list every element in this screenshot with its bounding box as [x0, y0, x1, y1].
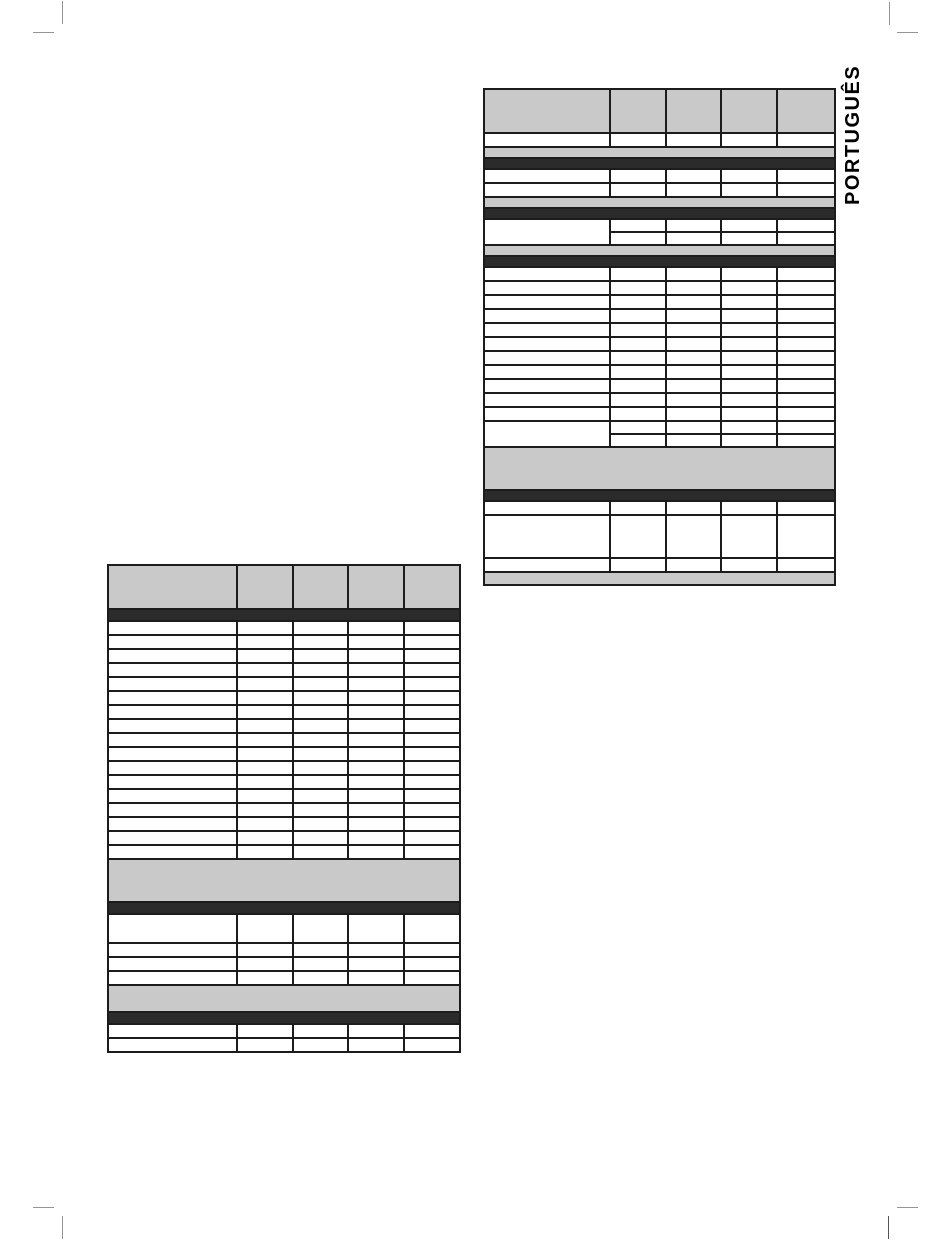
spec-value-cell	[237, 761, 293, 775]
header-cell	[721, 89, 777, 133]
spec-name-cell	[108, 803, 237, 817]
crop-mark-bottom-left-vertical	[62, 1216, 63, 1239]
spec-value-cell	[237, 1038, 293, 1052]
spec-value-cell	[721, 169, 777, 183]
spec-value-cell	[721, 558, 777, 572]
spec-value-cell	[293, 845, 348, 859]
spec-value-cell	[348, 971, 404, 985]
spec-name-cell	[108, 789, 237, 803]
spec-value-cell	[666, 365, 721, 379]
spec-name-cell	[108, 747, 237, 761]
spec-value-cell	[777, 295, 835, 309]
spec-value-cell	[348, 831, 404, 845]
spec-value-cell	[610, 219, 666, 232]
spec-value-cell	[237, 663, 293, 677]
section-band-gray	[484, 245, 835, 256]
crop-mark-top-left-horizontal	[33, 32, 54, 33]
spec-value-cell	[348, 914, 404, 943]
spec-name-cell-merged	[484, 219, 610, 245]
spec-value-cell	[610, 515, 666, 558]
spec-value-cell	[348, 803, 404, 817]
spec-value-cell	[666, 337, 721, 351]
spec-name-cell	[484, 351, 610, 365]
spec-value-cell	[610, 337, 666, 351]
spec-value-cell	[721, 365, 777, 379]
spec-name-cell	[108, 649, 237, 663]
spec-name-cell	[108, 1038, 237, 1052]
spec-value-cell	[610, 365, 666, 379]
spec-value-cell	[237, 649, 293, 663]
spec-name-cell	[108, 845, 237, 859]
spec-name-cell	[108, 677, 237, 691]
section-band-black	[108, 1012, 460, 1024]
spec-value-cell	[777, 407, 835, 421]
spec-name-cell	[108, 621, 237, 635]
spec-value-cell	[666, 295, 721, 309]
spec-value-cell	[610, 295, 666, 309]
spec-value-cell	[666, 558, 721, 572]
spec-value-cell	[237, 775, 293, 789]
spec-value-cell	[237, 719, 293, 733]
spec-value-cell	[237, 817, 293, 831]
spec-name-cell	[484, 515, 610, 558]
spec-name-cell	[108, 761, 237, 775]
spec-name-cell	[108, 705, 237, 719]
spec-value-cell	[721, 232, 777, 245]
spec-value-cell	[293, 803, 348, 817]
spec-value-cell	[666, 232, 721, 245]
spec-value-cell	[610, 558, 666, 572]
spec-value-cell	[348, 845, 404, 859]
spec-value-cell	[666, 323, 721, 337]
spec-name-cell	[108, 971, 237, 985]
spec-value-cell	[610, 434, 666, 447]
spec-value-cell	[777, 379, 835, 393]
section-band-gray	[108, 985, 460, 1012]
spec-value-cell	[777, 558, 835, 572]
spec-value-cell	[237, 621, 293, 635]
spec-value-cell	[293, 1038, 348, 1052]
spec-value-cell	[721, 393, 777, 407]
spec-value-cell	[348, 635, 404, 649]
spec-value-cell	[610, 169, 666, 183]
spec-value-cell	[237, 914, 293, 943]
spec-value-cell	[404, 803, 460, 817]
spec-value-cell	[777, 365, 835, 379]
spec-value-cell	[293, 943, 348, 957]
section-band-gray	[484, 572, 835, 585]
spec-value-cell	[293, 789, 348, 803]
spec-name-cell	[484, 267, 610, 281]
spec-value-cell	[348, 1038, 404, 1052]
spec-value-cell	[348, 663, 404, 677]
spec-value-cell	[721, 434, 777, 447]
spec-value-cell	[721, 267, 777, 281]
spec-value-cell	[404, 761, 460, 775]
header-cell	[404, 565, 460, 609]
spec-value-cell	[293, 957, 348, 971]
spec-value-cell	[777, 267, 835, 281]
header-cell	[484, 89, 610, 133]
spec-value-cell	[666, 281, 721, 295]
spec-value-cell	[610, 407, 666, 421]
spec-value-cell	[666, 393, 721, 407]
spec-name-cell	[108, 733, 237, 747]
specs-table-right	[483, 88, 836, 586]
spec-name-cell	[484, 337, 610, 351]
spec-value-cell	[610, 323, 666, 337]
section-band-black	[108, 902, 460, 914]
section-band-black	[484, 208, 835, 219]
spec-value-cell	[348, 747, 404, 761]
spec-value-cell	[777, 501, 835, 515]
spec-value-cell	[777, 281, 835, 295]
spec-value-cell	[237, 971, 293, 985]
spec-value-cell	[293, 831, 348, 845]
spec-value-cell	[666, 379, 721, 393]
spec-value-cell	[293, 971, 348, 985]
spec-value-cell	[237, 733, 293, 747]
header-cell	[237, 565, 293, 609]
spec-value-cell	[721, 501, 777, 515]
document-page: PORTUGUÊS	[0, 0, 950, 1240]
spec-value-cell	[293, 719, 348, 733]
crop-mark-top-right-vertical	[889, 2, 890, 25]
spec-name-cell	[484, 365, 610, 379]
crop-mark-bottom-right-horizontal	[897, 1207, 918, 1208]
spec-value-cell	[404, 775, 460, 789]
header-cell	[666, 89, 721, 133]
spec-value-cell	[404, 649, 460, 663]
spec-value-cell	[293, 635, 348, 649]
spec-name-cell	[108, 691, 237, 705]
spec-value-cell	[348, 719, 404, 733]
spec-value-cell	[666, 501, 721, 515]
spec-name-cell	[108, 663, 237, 677]
spec-value-cell	[404, 914, 460, 943]
spec-value-cell	[348, 789, 404, 803]
spec-name-cell	[484, 183, 610, 197]
spec-value-cell	[237, 747, 293, 761]
spec-name-cell	[484, 295, 610, 309]
spec-value-cell	[348, 943, 404, 957]
spec-value-cell	[293, 733, 348, 747]
spec-value-cell	[721, 515, 777, 558]
spec-value-cell	[777, 434, 835, 447]
spec-value-cell	[777, 309, 835, 323]
spec-value-cell	[404, 831, 460, 845]
spec-name-cell	[108, 775, 237, 789]
spec-value-cell	[404, 635, 460, 649]
spec-name-cell	[108, 957, 237, 971]
spec-value-cell	[237, 831, 293, 845]
spec-value-cell	[293, 677, 348, 691]
spec-value-cell	[721, 337, 777, 351]
spec-value-cell	[404, 1024, 460, 1038]
spec-name-cell	[484, 133, 610, 147]
spec-value-cell	[348, 649, 404, 663]
spec-value-cell	[721, 133, 777, 147]
spec-value-cell	[293, 691, 348, 705]
spec-value-cell	[666, 421, 721, 434]
spec-value-cell	[237, 943, 293, 957]
spec-value-cell	[721, 407, 777, 421]
spec-value-cell	[777, 169, 835, 183]
spec-value-cell	[777, 421, 835, 434]
spec-value-cell	[293, 621, 348, 635]
spec-value-cell	[404, 747, 460, 761]
spec-value-cell	[348, 677, 404, 691]
header-cell	[348, 565, 404, 609]
spec-value-cell	[404, 663, 460, 677]
section-band-black	[484, 256, 835, 267]
spec-value-cell	[404, 817, 460, 831]
spec-value-cell	[610, 393, 666, 407]
spec-value-cell	[777, 323, 835, 337]
spec-value-cell	[293, 663, 348, 677]
spec-name-cell	[484, 558, 610, 572]
spec-value-cell	[348, 1024, 404, 1038]
spec-value-cell	[666, 219, 721, 232]
spec-value-cell	[610, 281, 666, 295]
spec-value-cell	[237, 1024, 293, 1038]
spec-name-cell	[484, 309, 610, 323]
spec-value-cell	[610, 309, 666, 323]
spec-value-cell	[666, 515, 721, 558]
spec-value-cell	[404, 677, 460, 691]
section-band-black	[484, 490, 835, 501]
spec-value-cell	[293, 914, 348, 943]
spec-value-cell	[404, 719, 460, 733]
spec-value-cell	[777, 219, 835, 232]
section-band-gray	[108, 859, 460, 902]
spec-value-cell	[404, 1038, 460, 1052]
spec-value-cell	[666, 434, 721, 447]
section-band-black	[484, 158, 835, 169]
spec-value-cell	[404, 691, 460, 705]
spec-value-cell	[610, 351, 666, 365]
spec-value-cell	[404, 733, 460, 747]
spec-value-cell	[721, 351, 777, 365]
spec-value-cell	[666, 169, 721, 183]
spec-value-cell	[777, 133, 835, 147]
spec-value-cell	[721, 219, 777, 232]
spec-value-cell	[666, 407, 721, 421]
spec-name-cell	[484, 379, 610, 393]
spec-value-cell	[348, 957, 404, 971]
section-band-black	[108, 609, 460, 621]
spec-name-cell	[108, 914, 237, 943]
language-side-tab: PORTUGUÊS	[841, 83, 865, 205]
header-cell	[610, 89, 666, 133]
spec-name-cell	[484, 501, 610, 515]
spec-value-cell	[237, 705, 293, 719]
header-cell	[293, 565, 348, 609]
spec-value-cell	[610, 232, 666, 245]
spec-value-cell	[293, 747, 348, 761]
header-cell	[108, 565, 237, 609]
spec-value-cell	[293, 705, 348, 719]
spec-name-cell-merged	[484, 421, 610, 447]
spec-name-cell	[108, 635, 237, 649]
spec-value-cell	[404, 789, 460, 803]
spec-value-cell	[348, 761, 404, 775]
spec-value-cell	[721, 281, 777, 295]
spec-value-cell	[777, 232, 835, 245]
spec-value-cell	[777, 351, 835, 365]
spec-name-cell	[484, 281, 610, 295]
spec-value-cell	[293, 1024, 348, 1038]
crop-mark-top-left-vertical	[62, 1, 63, 24]
spec-name-cell	[484, 393, 610, 407]
spec-value-cell	[237, 789, 293, 803]
section-band-gray	[484, 447, 835, 490]
spec-value-cell	[237, 691, 293, 705]
spec-value-cell	[721, 379, 777, 393]
spec-value-cell	[777, 337, 835, 351]
spec-value-cell	[610, 133, 666, 147]
spec-value-cell	[237, 803, 293, 817]
spec-value-cell	[348, 691, 404, 705]
spec-value-cell	[404, 621, 460, 635]
section-band-gray	[484, 147, 835, 158]
spec-value-cell	[721, 323, 777, 337]
spec-value-cell	[777, 183, 835, 197]
spec-value-cell	[293, 775, 348, 789]
spec-name-cell	[484, 323, 610, 337]
spec-value-cell	[610, 501, 666, 515]
spec-name-cell	[108, 1024, 237, 1038]
spec-value-cell	[610, 379, 666, 393]
header-cell	[777, 89, 835, 133]
spec-value-cell	[348, 733, 404, 747]
spec-value-cell	[348, 705, 404, 719]
spec-value-cell	[666, 183, 721, 197]
spec-name-cell	[108, 719, 237, 733]
spec-value-cell	[721, 309, 777, 323]
spec-value-cell	[237, 957, 293, 971]
crop-mark-bottom-right-vertical	[888, 1216, 889, 1239]
spec-name-cell	[484, 407, 610, 421]
spec-value-cell	[348, 817, 404, 831]
section-band-gray	[484, 197, 835, 208]
spec-value-cell	[666, 267, 721, 281]
spec-value-cell	[404, 957, 460, 971]
spec-value-cell	[610, 421, 666, 434]
spec-value-cell	[293, 761, 348, 775]
spec-value-cell	[721, 421, 777, 434]
spec-value-cell	[777, 393, 835, 407]
spec-value-cell	[610, 183, 666, 197]
spec-value-cell	[237, 677, 293, 691]
spec-value-cell	[237, 635, 293, 649]
spec-name-cell	[484, 169, 610, 183]
spec-name-cell	[108, 943, 237, 957]
spec-value-cell	[666, 309, 721, 323]
crop-mark-top-right-horizontal	[897, 32, 918, 33]
spec-value-cell	[666, 133, 721, 147]
spec-value-cell	[610, 267, 666, 281]
spec-value-cell	[666, 351, 721, 365]
spec-value-cell	[721, 183, 777, 197]
spec-value-cell	[348, 621, 404, 635]
spec-value-cell	[348, 775, 404, 789]
spec-value-cell	[404, 943, 460, 957]
spec-name-cell	[108, 817, 237, 831]
crop-mark-bottom-left-horizontal	[33, 1207, 54, 1208]
spec-value-cell	[404, 705, 460, 719]
spec-name-cell	[108, 831, 237, 845]
spec-value-cell	[777, 515, 835, 558]
spec-value-cell	[237, 845, 293, 859]
spec-value-cell	[404, 971, 460, 985]
spec-value-cell	[404, 845, 460, 859]
spec-value-cell	[293, 649, 348, 663]
specs-table-left	[107, 564, 461, 1053]
spec-value-cell	[721, 295, 777, 309]
spec-value-cell	[293, 817, 348, 831]
